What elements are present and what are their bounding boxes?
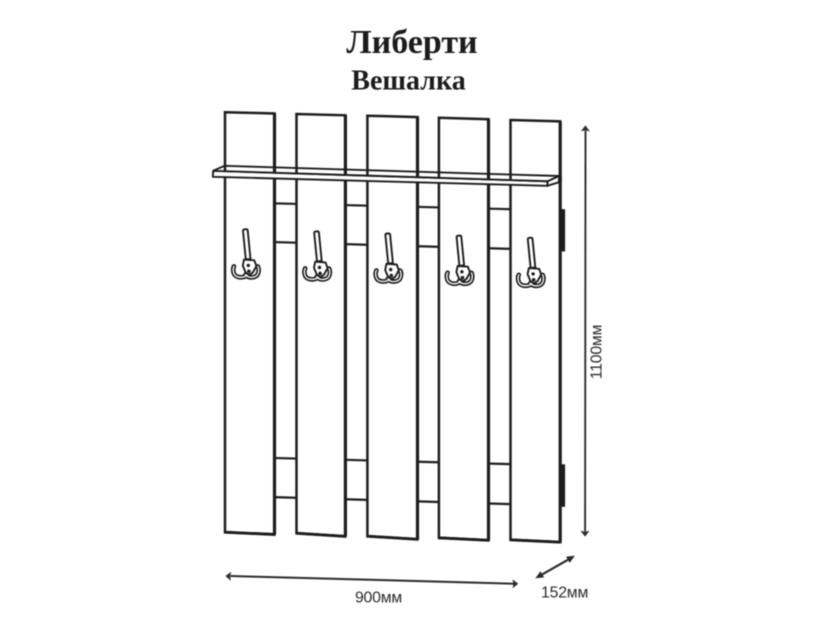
svg-text:152мм: 152мм xyxy=(541,584,588,601)
svg-text:Вешалка: Вешалка xyxy=(351,66,465,97)
svg-text:Либерти: Либерти xyxy=(346,24,477,61)
svg-text:1100мм: 1100мм xyxy=(589,325,606,380)
svg-text:900мм: 900мм xyxy=(355,589,402,606)
